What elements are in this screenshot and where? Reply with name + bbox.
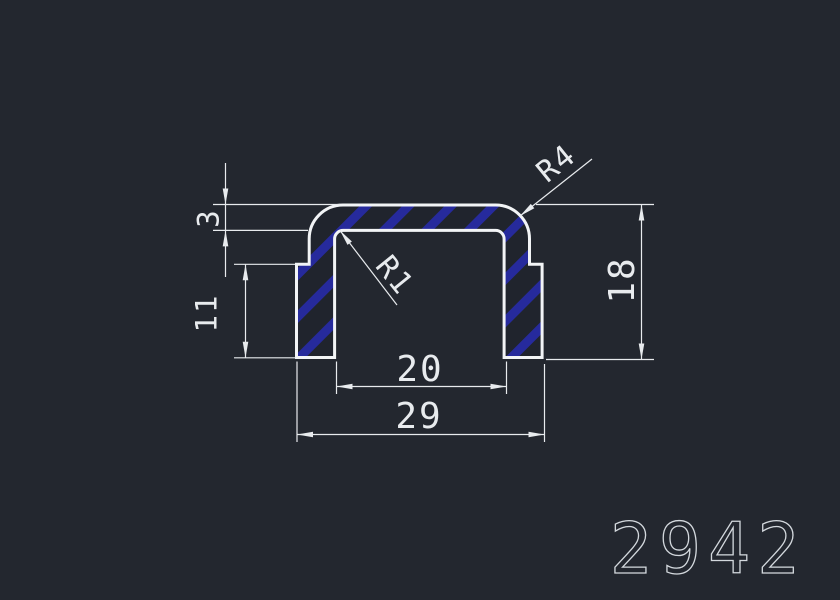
arrowhead [639,344,645,360]
dim-label-side-leg-height: 11 [193,294,222,333]
dim-label-inner-width: 20 [396,352,443,388]
arrowhead [520,204,534,216]
arrowhead [639,205,645,221]
arrowhead [243,264,249,280]
arrowhead [340,231,352,245]
arrowhead [491,384,507,390]
arrowhead [243,342,249,358]
arrowhead [223,189,229,205]
arrowhead [529,432,545,438]
profile-section-outline [297,205,543,358]
dim-label-overall-height: 18 [605,256,641,303]
part-number: 2942 [610,514,807,584]
dim-label-overall-width: 29 [395,399,442,435]
arrowhead [297,432,313,438]
dim-label-top-wall-thickness: 3 [195,208,224,227]
arrowhead [337,384,353,390]
cad-drawing-canvas: 3 11 18 20 29 R4 R1 2942 [0,0,840,600]
arrowhead [223,230,229,246]
